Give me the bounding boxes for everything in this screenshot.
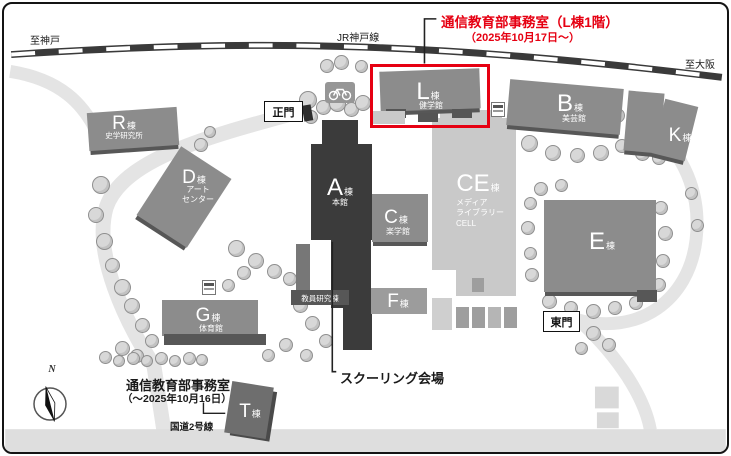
connector-new-office	[424, 19, 436, 64]
new-office-date: （2025年10月17日～）	[465, 29, 580, 45]
compass-north-label: N	[47, 364, 56, 375]
direction-osaka: 至大阪	[685, 56, 715, 71]
former-office-date: （～2025年10月16日）	[122, 391, 232, 406]
east-gate-label: 東門	[543, 311, 580, 332]
compass-icon: N	[28, 360, 72, 424]
new-office-title: 通信教育部事務室（L棟1階）	[441, 11, 619, 31]
main-gate-label: 正門	[264, 101, 303, 122]
route2-label: 国道2号線	[170, 419, 213, 433]
direction-kobe: 至神戸	[30, 32, 60, 47]
railway-name: JR神戸線	[337, 29, 379, 44]
campus-map: A棟 本館 L棟 健学館 B棟 美芸館 K棟 R棟 史学研究所 D棟 アートセン…	[2, 2, 729, 454]
connector-schooling	[332, 242, 336, 372]
schooling-venue-label: スクーリング会場	[340, 368, 444, 387]
